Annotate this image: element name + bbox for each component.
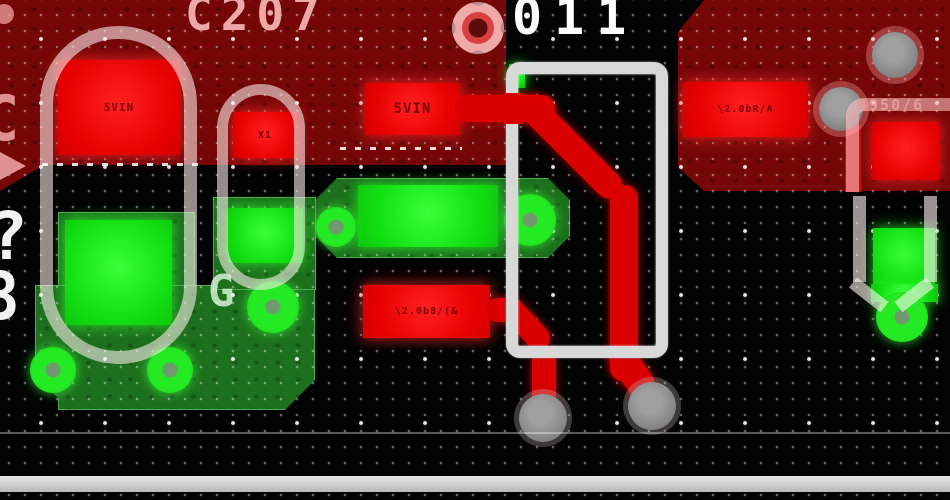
silk-dashed-line-mid — [340, 147, 462, 150]
net-label-mid-rect: \2.0b8/(& — [395, 306, 458, 317]
net-label-right-rect: \2.0bR/A — [717, 104, 773, 115]
silk-outline-x1[interactable] — [217, 84, 305, 290]
silk-glyph-8-edge: 8 — [0, 258, 20, 335]
red-pad-5vin-rect[interactable]: 5VIN — [365, 83, 460, 135]
designator-c207[interactable]: C207 — [185, 0, 328, 41]
via-top-right-1[interactable] — [872, 32, 918, 78]
silk-glyph-c-edge: C — [0, 82, 19, 155]
red-pad-right-rect[interactable]: \2.0bR/A — [683, 82, 808, 137]
designator-011[interactable]: 011 — [512, 0, 638, 46]
red-ring-pad-top[interactable] — [452, 2, 504, 54]
net-label-5vin-rect: 5VIN — [394, 101, 432, 117]
green-round-pad-pill-left[interactable] — [316, 207, 356, 247]
pcb-canvas: 5VIN X1 5VIN \2.0b8/(& \2.0bR/A C207 011… — [0, 0, 950, 500]
board-edge-bar[interactable] — [0, 476, 950, 492]
silk-dashed-line-left — [42, 163, 202, 166]
silk-arrow-left-edge — [0, 152, 26, 180]
red-pad-mid-rect[interactable]: \2.0b8/(& — [363, 285, 490, 338]
designator-4950[interactable]: 4950/6 — [858, 96, 924, 114]
via-bottom-left[interactable] — [519, 394, 567, 442]
via-bottom-right[interactable] — [628, 382, 676, 430]
silk-funnel-left-bar — [853, 196, 866, 282]
silk-funnel-right-bar — [924, 196, 937, 282]
edge-faint-line — [0, 432, 950, 434]
green-pad-rect-pill[interactable] — [358, 185, 498, 247]
silk-glyph-g[interactable]: G — [208, 266, 235, 317]
green-round-pad-bl-1[interactable] — [30, 347, 76, 393]
trace-over-silk-patch — [504, 93, 524, 124]
silk-outline-cap-left[interactable] — [40, 26, 197, 364]
silk-box-main[interactable] — [506, 62, 668, 358]
